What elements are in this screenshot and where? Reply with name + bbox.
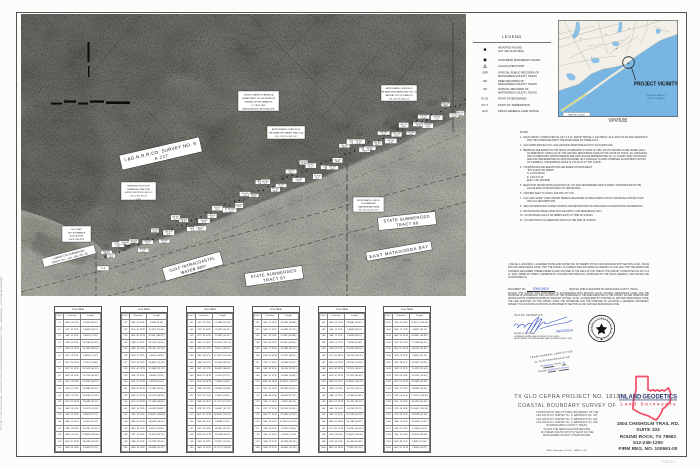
svg-text:48.19': 48.19'	[237, 206, 242, 208]
svg-text:38.45': 38.45'	[215, 209, 220, 211]
svg-text:N76°53'E: N76°53'E	[314, 176, 321, 178]
svg-text:OPR: OPR	[482, 70, 488, 74]
svg-text:CONCRETE MONUMENT FOUND: CONCRETE MONUMENT FOUND	[498, 58, 540, 62]
svg-text:N62°34'E: N62°34'E	[442, 103, 449, 105]
svg-text:N62°19'E: N62°19'E	[180, 219, 187, 221]
svg-text:94.71': 94.71'	[289, 172, 294, 174]
svg-text:UNITED PORTION OF CMP LLC: UNITED PORTION OF CMP LLC	[125, 192, 154, 194]
svg-text:39.15': 39.15'	[198, 229, 203, 231]
svg-text:33.10': 33.10'	[182, 221, 187, 223]
svg-text:32.43': 32.43'	[357, 142, 362, 144]
svg-text:31.64': 31.64'	[362, 151, 367, 153]
svg-text:CALCULATED POINT: CALCULATED POINT	[498, 64, 525, 68]
svg-text:N52°39'E: N52°39'E	[130, 240, 137, 242]
svg-text:N77°22'E: N77°22'E	[165, 232, 172, 234]
svg-text:N59°12'E: N59°12'E	[278, 185, 285, 187]
svg-text:Land Surveyors: Land Surveyors	[621, 402, 677, 407]
svg-text:89.15': 89.15'	[252, 196, 257, 198]
svg-text:O.P.R.: O.P.R.	[136, 199, 142, 201]
svg-text:72.44': 72.44'	[116, 245, 121, 247]
svg-text:N67°47'E: N67°47'E	[366, 147, 373, 149]
svg-text:N54°45'E: N54°45'E	[307, 165, 314, 167]
svg-text:N34°46'E: N34°46'E	[425, 125, 432, 127]
svg-text:DEPARTMENT OF THE INTERIOR: DEPARTMENT OF THE INTERIOR	[242, 97, 275, 100]
svg-text:N13°30'E: N13°30'E	[262, 181, 269, 183]
svg-text:55.81': 55.81'	[263, 183, 268, 185]
svg-text:N79°34'E: N79°34'E	[250, 194, 257, 196]
svg-text:13.53': 13.53'	[109, 256, 114, 258]
svg-text:N43°19'E: N43°19'E	[108, 255, 115, 257]
svg-text:POINT OF TERMINATION: POINT OF TERMINATION	[498, 103, 530, 107]
svg-text:BUREAU OF RECLAMATION: BUREAU OF RECLAMATION	[245, 101, 273, 104]
svg-text:32.77': 32.77'	[458, 114, 463, 116]
svg-text:31.80': 31.80'	[409, 134, 414, 136]
svg-text:MATAGORDA COUNTY, TEXAS: MATAGORDA COUNTY, TEXAS	[498, 82, 537, 86]
svg-text:61.95': 61.95'	[426, 127, 431, 129]
svg-text:N72°35'E: N72°35'E	[374, 142, 381, 144]
svg-text:N68°22'E: N68°22'E	[457, 112, 464, 114]
svg-text:N12°27'E: N12°27'E	[334, 159, 341, 161]
svg-text:POINT OF BEGINNING: POINT OF BEGINNING	[498, 96, 526, 100]
svg-text:48.83': 48.83'	[166, 234, 171, 236]
svg-text:DR: DR	[483, 79, 487, 83]
svg-text:APPROXIMATE LOCATION OF: APPROXIMATE LOCATION OF	[272, 128, 301, 131]
svg-text:GRAPHIC SCALE: GRAPHIC SCALE	[568, 113, 585, 116]
svg-text:ALLEY ACCESS: ALLEY ACCESS	[70, 235, 84, 238]
svg-text:OFFICIAL RECORDS OF: OFFICIAL RECORDS OF	[498, 87, 529, 91]
svg-text:THE MEAN HIGH WATER TRACT (50): THE MEAN HIGH WATER TRACT (50)	[269, 132, 304, 135]
svg-text:GLO: GLO	[482, 109, 487, 113]
svg-text:N24°31'E: N24°31'E	[209, 215, 216, 217]
svg-text:OR: OR	[483, 87, 487, 91]
svg-text:93.23': 93.23'	[273, 191, 278, 193]
svg-text:DEED RECORDS OF: DEED RECORDS OF	[498, 79, 524, 83]
svg-text:T.B.S. TRACT: T.B.S. TRACT	[71, 228, 83, 231]
svg-text:INLAND GEODETICS: INLAND GEODETICS	[619, 394, 677, 401]
svg-text:N42°25'E: N42°25'E	[355, 141, 362, 143]
svg-text:MATAGORDA COUNTY, TEXAS: MATAGORDA COUNTY, TEXAS	[498, 74, 537, 78]
svg-text:N45°42'E: N45°42'E	[103, 251, 110, 253]
svg-text:VOL. 2,752, PG. 34: VOL. 2,752, PG. 34	[130, 196, 147, 198]
svg-text:N52°51'E: N52°51'E	[400, 124, 407, 126]
svg-text:40.90': 40.90'	[141, 251, 146, 253]
svg-text:MATAGORDA COUNTY, TEXAS: MATAGORDA COUNTY, TEXAS	[498, 91, 537, 95]
svg-text:N17°59'E: N17°59'E	[228, 209, 235, 211]
svg-text:N33°51'E: N33°51'E	[393, 134, 400, 136]
svg-text:TEXAS GENERAL LAND OFFICE: TEXAS GENERAL LAND OFFICE	[498, 109, 539, 113]
svg-text:75.21': 75.21'	[279, 186, 284, 188]
svg-text:29.20': 29.20'	[162, 242, 167, 244]
svg-text:N43°16'E: N43°16'E	[387, 140, 394, 142]
svg-text:75.31': 75.31'	[435, 119, 440, 121]
svg-text:SELF BUSTAMANTE: SELF BUSTAMANTE	[68, 231, 86, 234]
svg-text:UNITED STATES OF AMERICA: UNITED STATES OF AMERICA	[244, 94, 274, 97]
svg-text:N77°34'E: N77°34'E	[272, 189, 279, 191]
svg-text:56.23': 56.23'	[146, 243, 151, 245]
svg-text:51.96': 51.96'	[389, 142, 394, 144]
svg-text:N13°17'E: N13°17'E	[288, 171, 295, 173]
svg-text:N18°32'E: N18°32'E	[420, 116, 427, 118]
svg-text:LEASE/EASEMENT AREA: LEASE/EASEMENT AREA	[358, 205, 380, 208]
svg-text:79.10': 79.10'	[243, 195, 248, 197]
svg-text:P.O.B.: P.O.B.	[481, 96, 489, 100]
svg-text:72.44': 72.44'	[417, 125, 422, 127]
svg-text:N12°33'E: N12°33'E	[140, 249, 147, 251]
svg-text:VOL. 720, PG. 362, D.R.: VOL. 720, PG. 362, D.R.	[275, 136, 297, 138]
svg-text:N25°20'E: N25°20'E	[214, 207, 221, 209]
svg-text:VOL. 720, PG. 362, D.R.: VOL. 720, PG. 362, D.R.	[389, 98, 410, 100]
svg-text:N80°31'E: N80°31'E	[121, 242, 128, 244]
svg-text:(NOT TO SCALE): (NOT TO SCALE)	[647, 97, 665, 100]
svg-text:90.90': 90.90'	[394, 135, 399, 137]
svg-text:N16°10'E: N16°10'E	[201, 220, 208, 222]
svg-text:N26°36'E: N26°36'E	[172, 217, 179, 219]
svg-text:94.53': 94.53'	[368, 149, 373, 151]
svg-text:N15°40'E: N15°40'E	[415, 123, 422, 125]
svg-text:49.33': 49.33'	[153, 231, 158, 233]
svg-text:N34°44'E: N34°44'E	[433, 117, 440, 119]
svg-text:THE MEAN HIGH WATER TRACT NO.: THE MEAN HIGH WATER TRACT NO. 175	[381, 91, 418, 94]
svg-text:75.99': 75.99'	[382, 134, 387, 136]
svg-text:APPROXIMATE LOCATION OF: APPROXIMATE LOCATION OF	[386, 87, 414, 90]
svg-text:SUBMERGED TRACT (88): SUBMERGED TRACT (88)	[127, 188, 150, 191]
svg-text:VOL. 732, PG. 201, O.R.: VOL. 732, PG. 201, O.R.	[359, 210, 379, 212]
svg-text:69.29': 69.29'	[315, 177, 320, 179]
svg-text:IRON ROD FOUND: IRON ROD FOUND	[498, 46, 522, 50]
svg-text:PATENTED PORTION OF: PATENTED PORTION OF	[127, 184, 150, 187]
svg-text:71.24': 71.24'	[422, 118, 427, 120]
svg-text:APPROXIMATE LOCATION: APPROXIMATE LOCATION	[357, 199, 380, 202]
svg-text:N46°17'E: N46°17'E	[197, 227, 204, 229]
svg-text:N75°43'E: N75°43'E	[295, 179, 302, 181]
svg-text:OF SUBMERGED: OF SUBMERGED	[361, 203, 376, 205]
svg-text:(1/2" OR AS NOTED): (1/2" OR AS NOTED)	[498, 49, 524, 53]
svg-text:24.42': 24.42'	[210, 217, 215, 219]
svg-text:N42°16'E: N42°16'E	[380, 132, 387, 134]
svg-text:91.86': 91.86'	[401, 126, 406, 128]
svg-text:P.O.B.: P.O.B.	[100, 268, 106, 270]
svg-text:53.96': 53.96'	[132, 242, 137, 244]
svg-text:ALBUQUERQUE, NM 87103-1306: ALBUQUERQUE, NM 87103-1306	[243, 108, 276, 111]
svg-text:ABSTRACT 223 (177) AND 224: ABSTRACT 223 (177) AND 224	[386, 94, 413, 97]
svg-text:24.79': 24.79'	[375, 144, 380, 146]
svg-text:N71°54'E: N71°54'E	[341, 145, 348, 147]
svg-text:N25°18'E: N25°18'E	[242, 193, 249, 195]
svg-text:84.34': 84.34'	[452, 116, 457, 118]
svg-text:N50°20'E: N50°20'E	[236, 204, 243, 206]
svg-text:N23°55'E: N23°55'E	[408, 132, 415, 134]
svg-text:PROJECT VICINITY: PROJECT VICINITY	[634, 82, 678, 88]
svg-text:45.76': 45.76'	[173, 218, 178, 220]
svg-text:OFFICIAL PUBLIC RECORDS OF: OFFICIAL PUBLIC RECORDS OF	[498, 70, 539, 74]
svg-text:69.25': 69.25'	[202, 222, 207, 224]
svg-text:48.80': 48.80'	[443, 105, 448, 107]
svg-text:P O BOX 1306: P O BOX 1306	[252, 105, 267, 107]
svg-text:L: L	[591, 329, 593, 330]
svg-text:45.95': 45.95'	[330, 169, 335, 171]
svg-text:69.58': 69.58'	[335, 161, 340, 163]
svg-text:N38°38'E: N38°38'E	[161, 240, 168, 242]
svg-text:61.20': 61.20'	[309, 166, 314, 168]
svg-text:84.36': 84.36'	[342, 147, 347, 149]
svg-text:P.O.T.: P.O.T.	[482, 103, 489, 107]
svg-text:N43°29'E: N43°29'E	[144, 241, 151, 243]
svg-text:38.23': 38.23'	[297, 181, 302, 183]
svg-text:N78°59'E: N78°59'E	[329, 167, 336, 169]
svg-text:UNITS 21/56-22-51: UNITS 21/56-22-51	[69, 239, 85, 241]
svg-text:N44°25'E: N44°25'E	[152, 230, 159, 232]
svg-text:GULF OF MEXICO: GULF OF MEXICO	[647, 95, 666, 97]
svg-text:24.15': 24.15'	[229, 211, 234, 213]
